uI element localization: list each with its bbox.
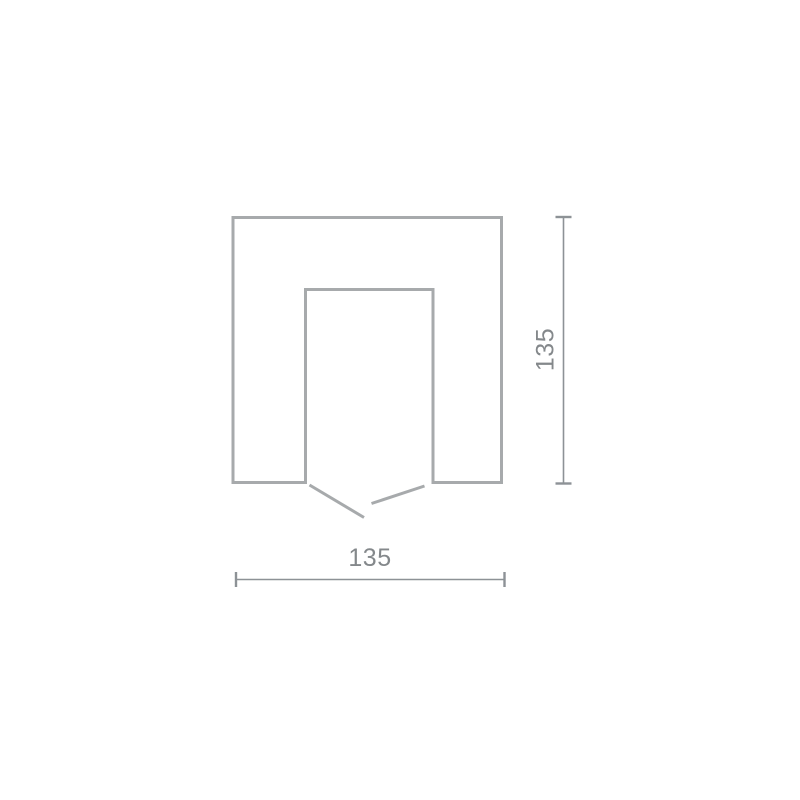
right-diagonal-line: [372, 486, 425, 504]
product-outline-shape: [233, 218, 502, 483]
width-dimension: 135: [236, 544, 505, 587]
dimension-diagram: 135 135: [0, 0, 800, 800]
height-dimension: 135: [532, 217, 572, 484]
height-dimension-label: 135: [532, 328, 560, 371]
diagram-canvas: 135 135: [0, 0, 800, 800]
left-diagonal-line: [310, 485, 365, 518]
width-dimension-label: 135: [348, 544, 391, 572]
